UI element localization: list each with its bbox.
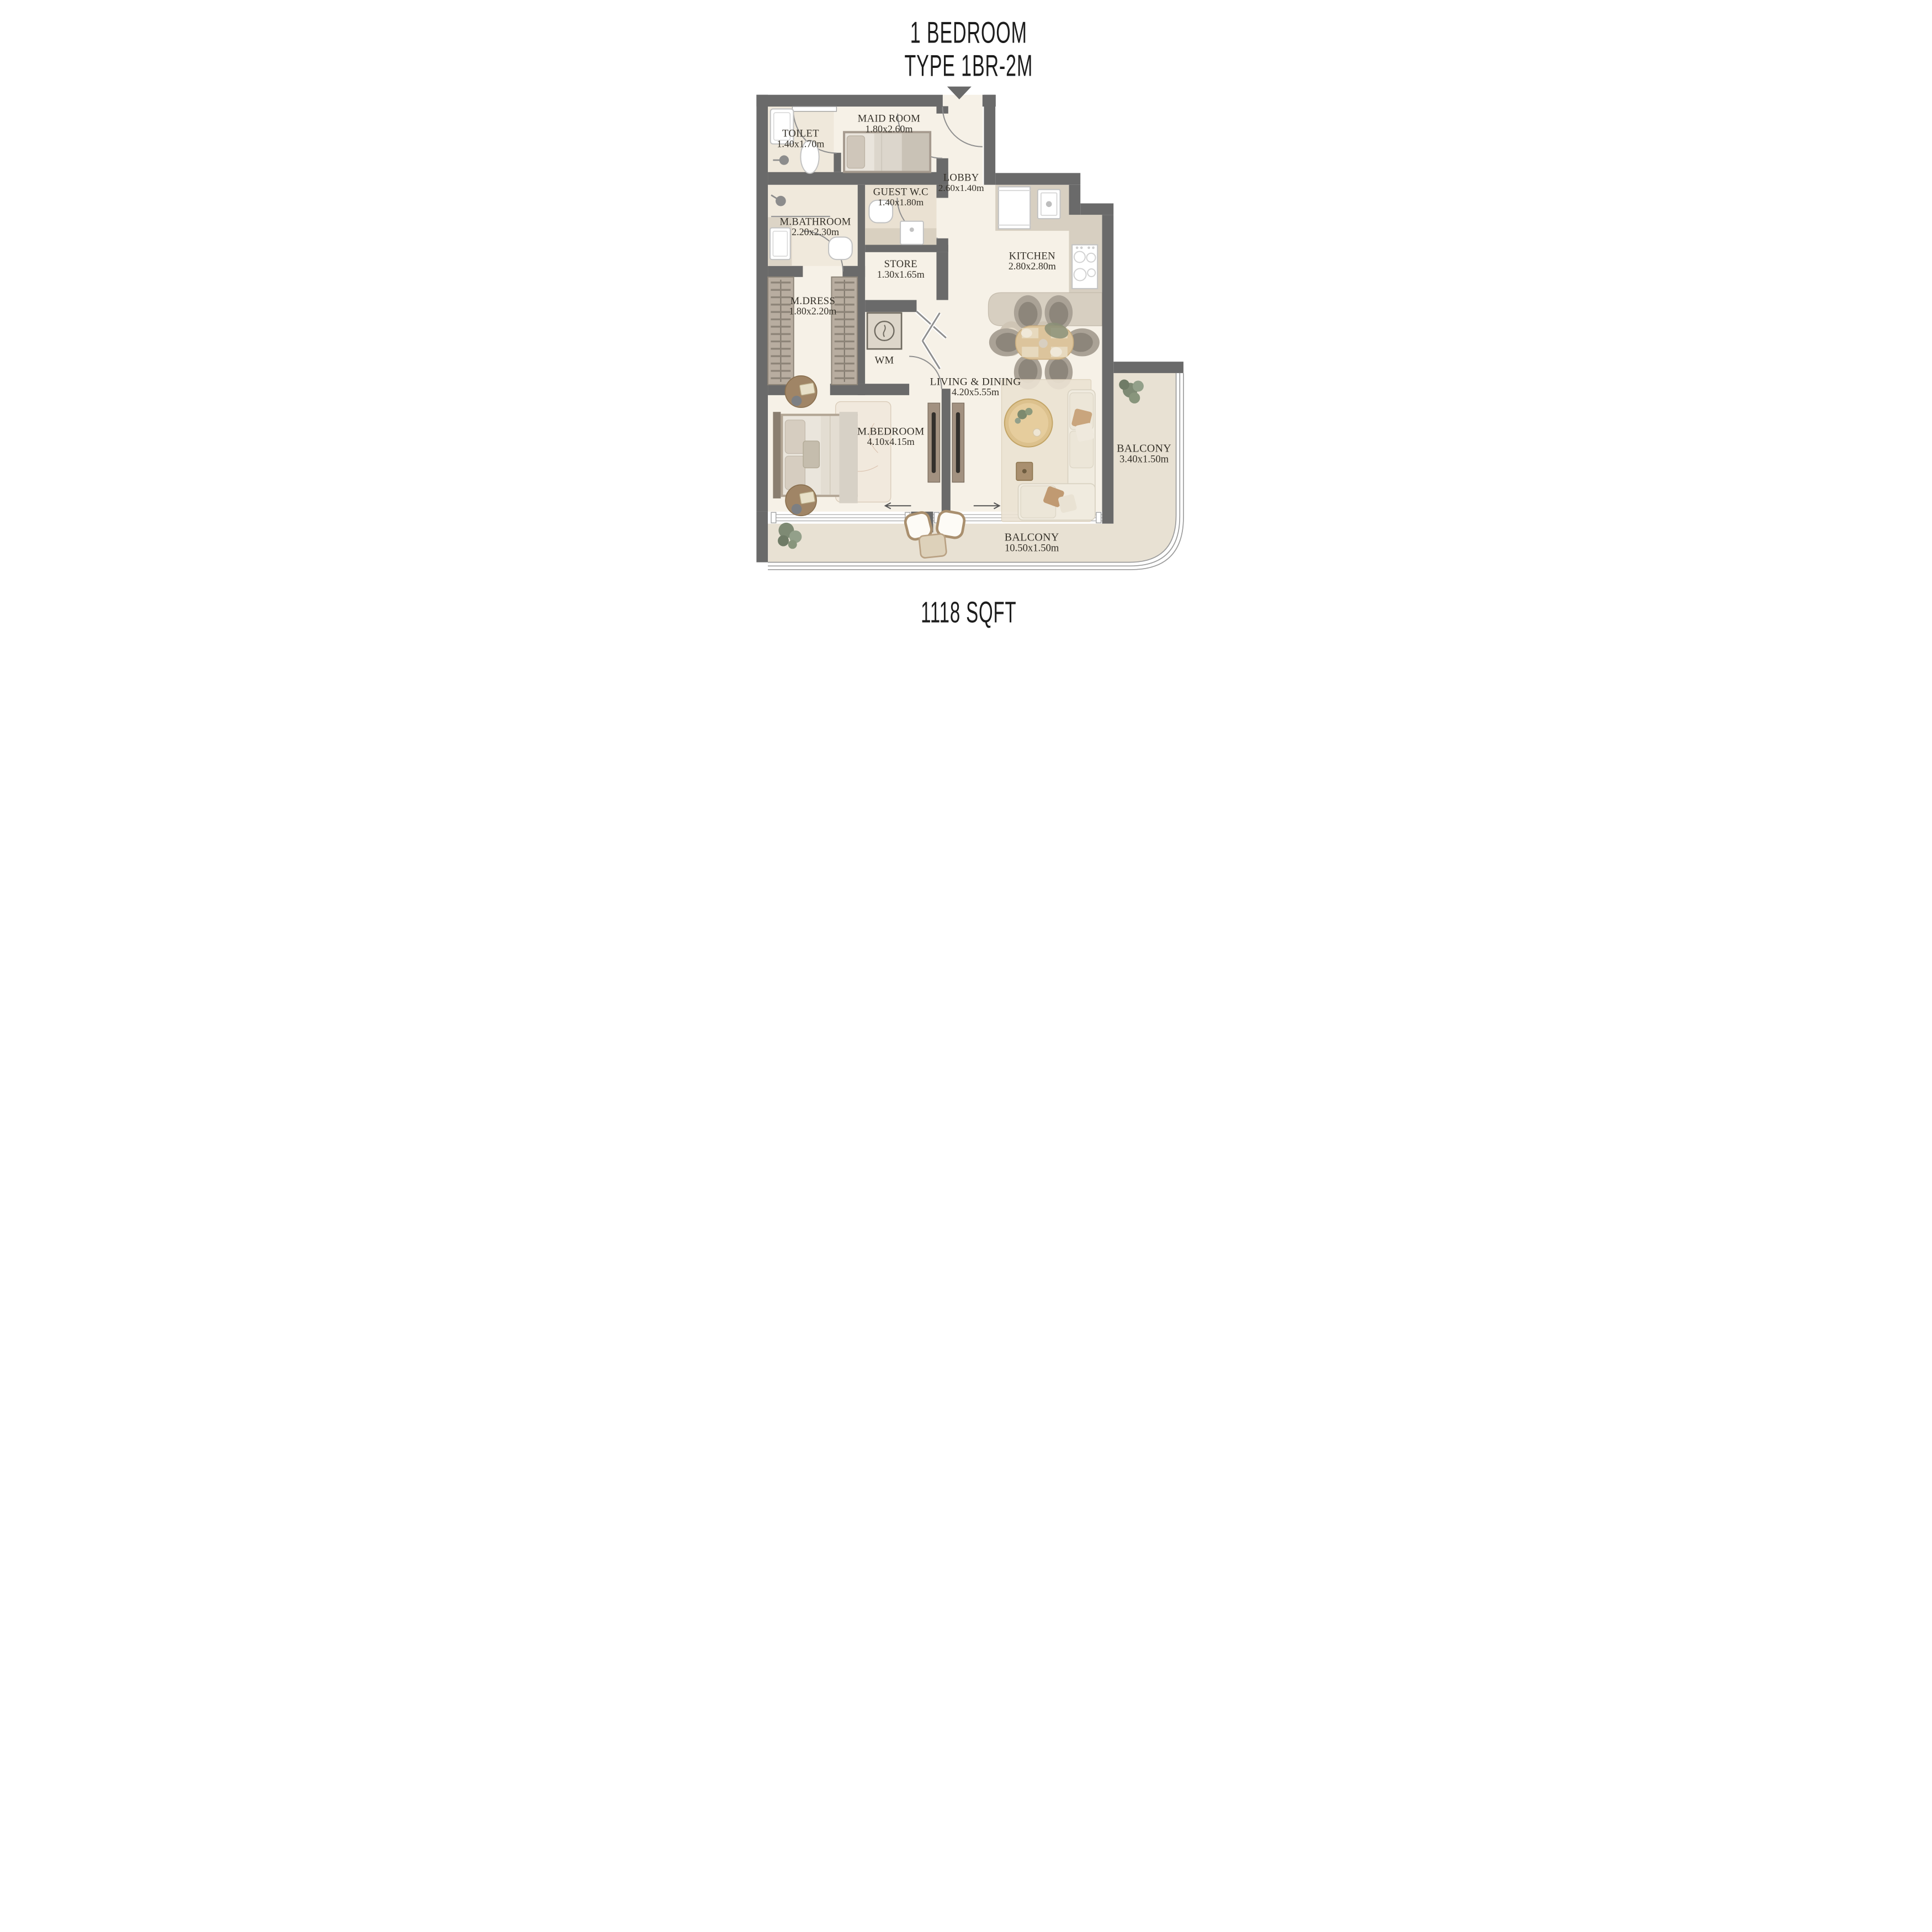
label-living-dining: LIVING & DINING [930,376,1021,388]
dims-kitchen: 2.80x2.80m [1008,261,1055,272]
label-kitchen: KITCHEN [1009,250,1055,262]
label-maid-room: MAID ROOM [857,113,920,125]
dims-m-bedroom: 4.10x4.15m [867,436,914,447]
dims-store: 1.30x1.65m [877,269,924,280]
label-store: STORE [884,258,917,270]
label-guest-wc: GUEST W.C [873,186,928,198]
dims-toilet: 1.40x1.70m [777,139,824,150]
label-wm: WM [874,355,894,367]
washing-machine [867,313,901,349]
dims-m-dress: 1.80x2.20m [789,305,836,316]
dims-lobby: 2.60x1.40m [938,183,984,193]
title-line1: 1 BEDROOM [910,15,1027,49]
area-sqft: 1118 SQFT [921,597,1016,629]
dims-living-dining: 4.20x5.55m [952,386,999,397]
dims-balcony-bottom: 10.50x1.50m [1004,543,1059,554]
label-toilet: TOILET [782,128,819,139]
master-bed [773,412,857,503]
label-balcony-bottom: BALCONY [1004,532,1059,544]
label-m-bedroom: M.BEDROOM [857,426,924,438]
title-line2: TYPE 1BR-2M [904,49,1033,82]
coffee-table [1004,399,1052,447]
dims-m-bathroom: 2.20x2.30m [792,226,839,237]
dims-guest-wc: 1.40x1.80m [878,197,923,208]
dims-maid-room: 1.80x2.60m [865,123,912,134]
floor-plan-page: 1 BEDROOM TYPE 1BR-2M [644,0,1288,644]
dims-balcony-right: 3.40x1.50m [1119,454,1169,465]
label-m-dress: M.DRESS [790,295,835,307]
plan-title: 1 BEDROOM TYPE 1BR-2M [904,15,1033,82]
label-lobby: LOBBY [943,172,979,183]
maid-bed [843,131,931,173]
label-balcony-right: BALCONY [1117,443,1171,455]
label-m-bathroom: M.BATHROOM [779,216,851,227]
area-label: 1118 SQFT [921,597,1016,629]
